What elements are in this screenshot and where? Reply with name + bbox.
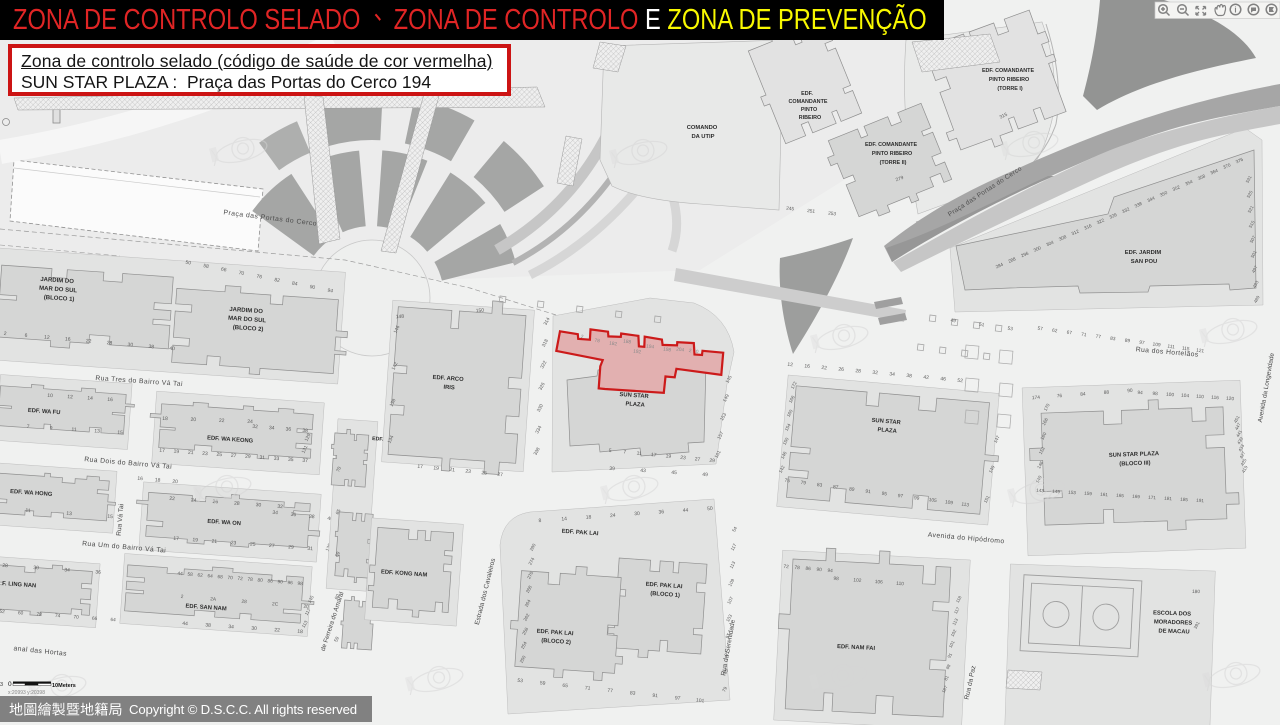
- svg-text:38: 38: [906, 373, 912, 380]
- svg-text:COMANDANTE: COMANDANTE: [789, 99, 828, 105]
- svg-text:10Meters: 10Meters: [52, 683, 76, 689]
- svg-text:34: 34: [228, 624, 234, 630]
- svg-text:14: 14: [561, 516, 567, 522]
- svg-text:91: 91: [652, 693, 658, 700]
- svg-text:31: 31: [259, 455, 265, 461]
- svg-text:27: 27: [269, 543, 275, 549]
- svg-text:90: 90: [1127, 388, 1133, 394]
- svg-text:45: 45: [671, 470, 677, 476]
- svg-text:36: 36: [290, 512, 296, 519]
- svg-text:EDF.: EDF.: [801, 91, 813, 97]
- svg-text:113: 113: [961, 502, 970, 509]
- svg-text:84: 84: [1080, 391, 1086, 397]
- svg-text:28: 28: [241, 599, 247, 605]
- svg-text:SAN POU: SAN POU: [1131, 259, 1157, 265]
- svg-text:12: 12: [67, 394, 73, 400]
- svg-text:13: 13: [94, 428, 100, 434]
- svg-text:16: 16: [137, 476, 143, 482]
- svg-text:94: 94: [1137, 390, 1143, 396]
- svg-text:165: 165: [1116, 493, 1124, 498]
- svg-text:88: 88: [1104, 390, 1110, 396]
- svg-text:15: 15: [117, 430, 123, 436]
- svg-text:83: 83: [630, 690, 636, 697]
- svg-text:194: 194: [646, 343, 655, 350]
- svg-text:22: 22: [169, 496, 175, 502]
- svg-text:86: 86: [805, 566, 811, 572]
- svg-text:148: 148: [396, 314, 405, 321]
- svg-text:77: 77: [607, 688, 613, 695]
- svg-text:120: 120: [1226, 396, 1235, 403]
- svg-text:98: 98: [833, 576, 839, 582]
- svg-text:27: 27: [694, 456, 700, 463]
- svg-text:18: 18: [586, 514, 592, 520]
- svg-text:185: 185: [1180, 497, 1188, 502]
- svg-text:36: 36: [285, 426, 291, 432]
- svg-text:25: 25: [481, 470, 487, 477]
- svg-text:2C: 2C: [272, 601, 279, 608]
- svg-text:198: 198: [663, 346, 672, 353]
- svg-text:180: 180: [1192, 589, 1201, 595]
- svg-text:21: 21: [449, 467, 455, 474]
- svg-text:253: 253: [828, 211, 837, 218]
- svg-text:PINTO RIBEIRO: PINTO RIBEIRO: [872, 151, 912, 157]
- svg-text:23: 23: [202, 451, 208, 457]
- svg-text:11: 11: [636, 451, 642, 457]
- svg-text:PINTO RIBEIRO: PINTO RIBEIRO: [989, 77, 1029, 83]
- svg-text:13: 13: [66, 511, 72, 517]
- svg-text:17: 17: [651, 452, 657, 459]
- svg-text:174: 174: [1032, 395, 1041, 402]
- svg-text:182: 182: [609, 340, 618, 347]
- svg-text:28: 28: [855, 368, 861, 375]
- svg-text:110: 110: [1196, 394, 1204, 401]
- svg-text:192: 192: [633, 348, 642, 355]
- svg-text:14: 14: [87, 396, 93, 402]
- svg-text:29: 29: [245, 454, 251, 460]
- svg-text:71: 71: [585, 685, 591, 692]
- svg-text:106: 106: [875, 579, 884, 586]
- svg-text:169: 169: [1132, 494, 1140, 499]
- svg-text:19: 19: [173, 449, 179, 455]
- svg-text:25: 25: [216, 452, 222, 458]
- svg-text:39: 39: [609, 466, 615, 472]
- svg-text:109: 109: [945, 499, 954, 506]
- svg-text:28: 28: [106, 340, 112, 346]
- svg-text:65: 65: [562, 683, 568, 690]
- svg-text:12: 12: [44, 335, 50, 341]
- svg-text:34: 34: [64, 567, 70, 573]
- svg-text:46: 46: [940, 376, 946, 383]
- svg-text:11: 11: [25, 508, 31, 514]
- svg-text:98: 98: [1152, 391, 1158, 397]
- svg-text:PINTO: PINTO: [801, 107, 817, 113]
- svg-text:78: 78: [247, 577, 253, 583]
- svg-text:0: 0: [8, 681, 12, 688]
- svg-text:28: 28: [234, 501, 240, 507]
- svg-text:18: 18: [297, 629, 303, 635]
- svg-text:38: 38: [148, 344, 154, 350]
- svg-text:28: 28: [2, 563, 8, 569]
- svg-text:72: 72: [237, 576, 243, 582]
- svg-text:110: 110: [896, 581, 904, 588]
- svg-text:19: 19: [433, 465, 439, 472]
- svg-text:11: 11: [71, 427, 77, 433]
- svg-text:16: 16: [65, 336, 71, 342]
- svg-text:181: 181: [1164, 496, 1172, 501]
- svg-text:29: 29: [709, 458, 715, 465]
- svg-text:100: 100: [1166, 392, 1175, 399]
- svg-text:44: 44: [683, 507, 689, 513]
- svg-text:19: 19: [192, 537, 198, 543]
- svg-text:50: 50: [707, 506, 713, 512]
- svg-text:16: 16: [107, 397, 113, 403]
- svg-text:38: 38: [205, 622, 211, 628]
- svg-text:EDF. JARDIM: EDF. JARDIM: [1125, 250, 1162, 256]
- svg-text:161: 161: [1100, 492, 1108, 497]
- svg-text:35: 35: [288, 457, 294, 463]
- svg-text:64: 64: [207, 573, 213, 579]
- svg-text:EDF. COMANDANTE: EDF. COMANDANTE: [865, 142, 918, 148]
- svg-text:44: 44: [182, 621, 188, 627]
- svg-text:62: 62: [197, 572, 203, 578]
- svg-text:80: 80: [257, 577, 263, 583]
- svg-text:94: 94: [827, 568, 833, 574]
- svg-text:EDF. COMANDANTE: EDF. COMANDANTE: [982, 68, 1035, 74]
- svg-text:30: 30: [251, 626, 257, 632]
- svg-text:70: 70: [73, 614, 79, 620]
- svg-text:90: 90: [816, 567, 822, 573]
- svg-text:42: 42: [923, 375, 929, 382]
- svg-text:150: 150: [476, 308, 485, 315]
- svg-text:27: 27: [497, 472, 503, 479]
- svg-text:104: 104: [1181, 393, 1190, 400]
- svg-text:27: 27: [231, 453, 237, 459]
- svg-text:44: 44: [177, 571, 183, 577]
- svg-text:(BLOCO III): (BLOCO III): [1119, 460, 1150, 467]
- svg-text:97: 97: [675, 695, 681, 702]
- svg-text:17: 17: [417, 464, 423, 471]
- svg-text:3: 3: [0, 682, 3, 688]
- svg-text:12: 12: [787, 362, 793, 369]
- svg-text:43: 43: [640, 468, 646, 474]
- svg-text:20: 20: [190, 417, 196, 423]
- svg-text:21: 21: [211, 539, 217, 545]
- svg-text:70: 70: [227, 575, 233, 581]
- svg-text:53: 53: [517, 678, 523, 685]
- svg-text:37: 37: [302, 458, 308, 464]
- svg-text:204: 204: [676, 346, 685, 353]
- svg-text:49: 49: [702, 472, 708, 478]
- svg-text:96: 96: [287, 580, 293, 586]
- svg-text:29: 29: [288, 544, 294, 550]
- svg-text:23: 23: [465, 469, 471, 476]
- svg-text:159: 159: [1084, 491, 1092, 496]
- svg-text:19: 19: [665, 453, 671, 460]
- svg-text:101: 101: [696, 698, 705, 705]
- svg-text:30: 30: [33, 565, 39, 571]
- svg-text:10: 10: [47, 393, 53, 399]
- svg-text:52: 52: [957, 378, 963, 385]
- svg-text:30: 30: [127, 342, 133, 348]
- svg-text:23: 23: [230, 540, 236, 546]
- svg-text:143: 143: [1036, 488, 1044, 493]
- svg-text:171: 171: [1148, 495, 1156, 500]
- svg-text:90: 90: [277, 579, 283, 585]
- svg-text:22: 22: [821, 365, 827, 372]
- svg-text:22: 22: [86, 338, 92, 344]
- svg-text:DA UTIP: DA UTIP: [692, 134, 715, 140]
- svg-text:16: 16: [804, 363, 810, 370]
- svg-text:74: 74: [55, 613, 61, 619]
- svg-text:72: 72: [783, 564, 789, 570]
- svg-text:68: 68: [217, 574, 223, 580]
- svg-text:32: 32: [872, 370, 878, 377]
- svg-text:36: 36: [95, 569, 101, 575]
- svg-text:31: 31: [307, 546, 313, 552]
- svg-text:25: 25: [250, 542, 256, 548]
- svg-text:32: 32: [252, 424, 258, 430]
- svg-text:105: 105: [928, 497, 937, 504]
- svg-text:251: 251: [807, 208, 816, 215]
- svg-text:153: 153: [1068, 490, 1076, 495]
- svg-text:IRIS: IRIS: [443, 385, 455, 392]
- svg-text:24: 24: [610, 513, 616, 519]
- svg-text:34: 34: [272, 510, 278, 517]
- svg-text:59: 59: [540, 680, 546, 687]
- svg-text:116: 116: [1211, 395, 1219, 402]
- svg-text:64: 64: [110, 617, 116, 623]
- svg-text:60: 60: [18, 610, 24, 616]
- svg-text:66: 66: [92, 616, 98, 622]
- svg-text:22: 22: [274, 627, 280, 633]
- svg-text:i: i: [1234, 6, 1236, 15]
- svg-text:26: 26: [838, 367, 844, 374]
- svg-text:34: 34: [269, 425, 275, 431]
- svg-text:COMANDO: COMANDO: [687, 125, 718, 131]
- svg-text:33: 33: [273, 456, 279, 462]
- svg-text:76: 76: [1057, 393, 1063, 399]
- svg-text:36: 36: [658, 509, 664, 515]
- svg-text:17: 17: [159, 448, 165, 454]
- svg-text:38: 38: [309, 514, 315, 521]
- svg-text:30: 30: [255, 502, 261, 508]
- svg-text:34: 34: [889, 371, 895, 378]
- svg-text:(TORRE I): (TORRE I): [997, 86, 1023, 92]
- svg-text:191: 191: [1196, 498, 1204, 503]
- svg-text:DE MACAU: DE MACAU: [1158, 628, 1189, 635]
- svg-text:(TORRE II): (TORRE II): [880, 160, 907, 166]
- svg-text:17: 17: [173, 536, 179, 542]
- svg-text:245: 245: [786, 206, 795, 213]
- svg-text:40: 40: [169, 346, 175, 352]
- svg-text:22: 22: [219, 418, 225, 424]
- svg-text:98: 98: [297, 581, 303, 587]
- svg-text:78: 78: [36, 612, 42, 618]
- svg-text:30: 30: [634, 511, 640, 517]
- svg-text:52: 52: [0, 609, 5, 615]
- svg-text:58: 58: [187, 572, 193, 578]
- svg-text:78: 78: [794, 565, 800, 571]
- svg-text:86: 86: [267, 578, 273, 584]
- svg-text:18: 18: [162, 416, 168, 422]
- svg-text:RIBEIRO: RIBEIRO: [799, 115, 821, 121]
- svg-text:188: 188: [623, 338, 632, 345]
- svg-text:15: 15: [107, 514, 113, 520]
- svg-text:102: 102: [853, 577, 862, 584]
- svg-text:32: 32: [277, 504, 283, 510]
- svg-text:23: 23: [680, 455, 686, 462]
- svg-text:21: 21: [188, 450, 194, 456]
